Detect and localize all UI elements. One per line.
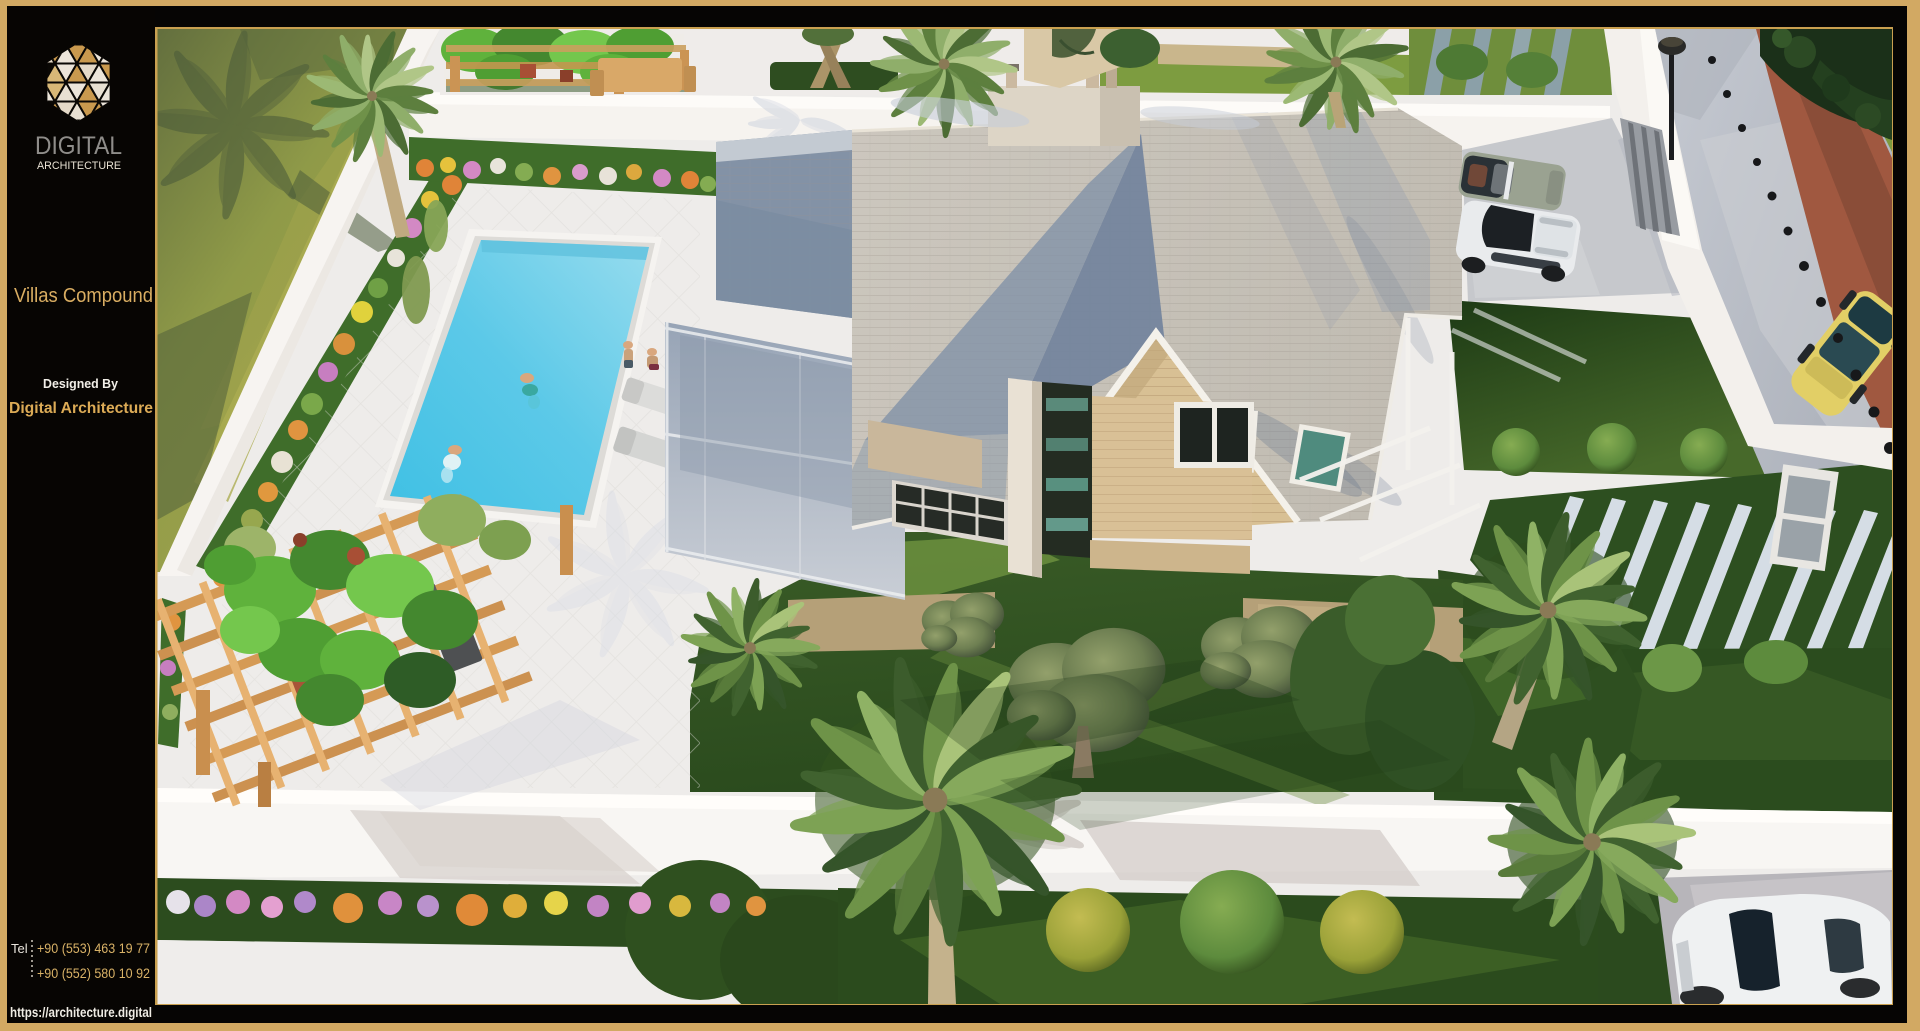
- svg-text:Villas Compound: Villas Compound: [14, 285, 153, 307]
- svg-text:Designed By: Designed By: [43, 376, 119, 391]
- svg-text:Digital Architecture: Digital Architecture: [9, 400, 153, 417]
- svg-text:https://architecture.digital: https://architecture.digital: [10, 1005, 152, 1020]
- svg-text:DIGITAL: DIGITAL: [35, 132, 122, 160]
- svg-text:+90 (552) 580 10 92: +90 (552) 580 10 92: [37, 966, 150, 981]
- svg-text:+90 (553) 463 19 77: +90 (553) 463 19 77: [37, 941, 150, 956]
- svg-text:Tel: Tel: [11, 941, 28, 956]
- svg-text:ARCHITECTURE: ARCHITECTURE: [37, 160, 121, 172]
